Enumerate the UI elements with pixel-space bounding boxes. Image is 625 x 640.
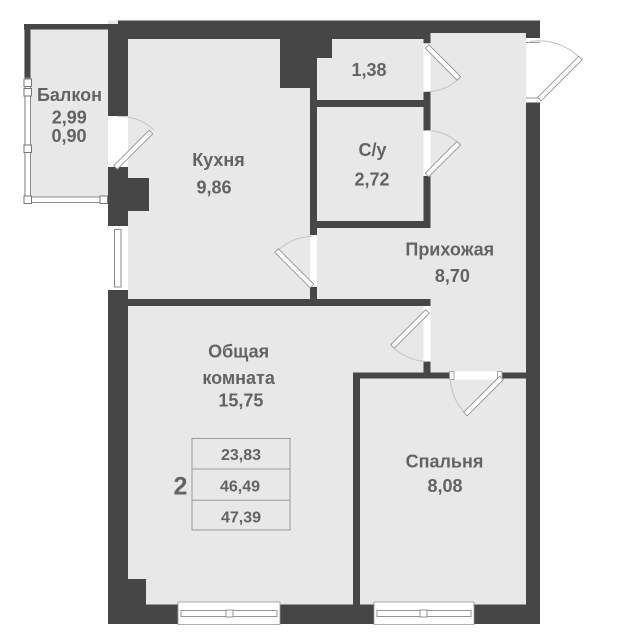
svg-text:46,49: 46,49 xyxy=(220,478,260,495)
svg-text:23,83: 23,83 xyxy=(221,447,261,464)
svg-text:Кухня: Кухня xyxy=(192,150,245,170)
svg-text:Прихожая: Прихожая xyxy=(405,240,494,260)
svg-text:2: 2 xyxy=(174,473,188,501)
svg-text:15,75: 15,75 xyxy=(218,391,263,411)
svg-text:8,08: 8,08 xyxy=(427,476,462,496)
svg-text:47,39: 47,39 xyxy=(221,509,261,526)
svg-text:9,86: 9,86 xyxy=(196,178,231,198)
svg-text:1,38: 1,38 xyxy=(351,60,386,80)
svg-text:Спальня: Спальня xyxy=(406,452,484,472)
svg-text:С/у: С/у xyxy=(358,140,386,160)
svg-text:комната: комната xyxy=(202,368,276,388)
svg-text:Общая: Общая xyxy=(208,342,269,362)
svg-text:2,99: 2,99 xyxy=(52,108,87,128)
svg-text:Балкон: Балкон xyxy=(37,85,102,105)
svg-text:0,90: 0,90 xyxy=(51,126,86,146)
svg-text:8,70: 8,70 xyxy=(435,266,470,286)
svg-text:2,72: 2,72 xyxy=(354,170,389,190)
